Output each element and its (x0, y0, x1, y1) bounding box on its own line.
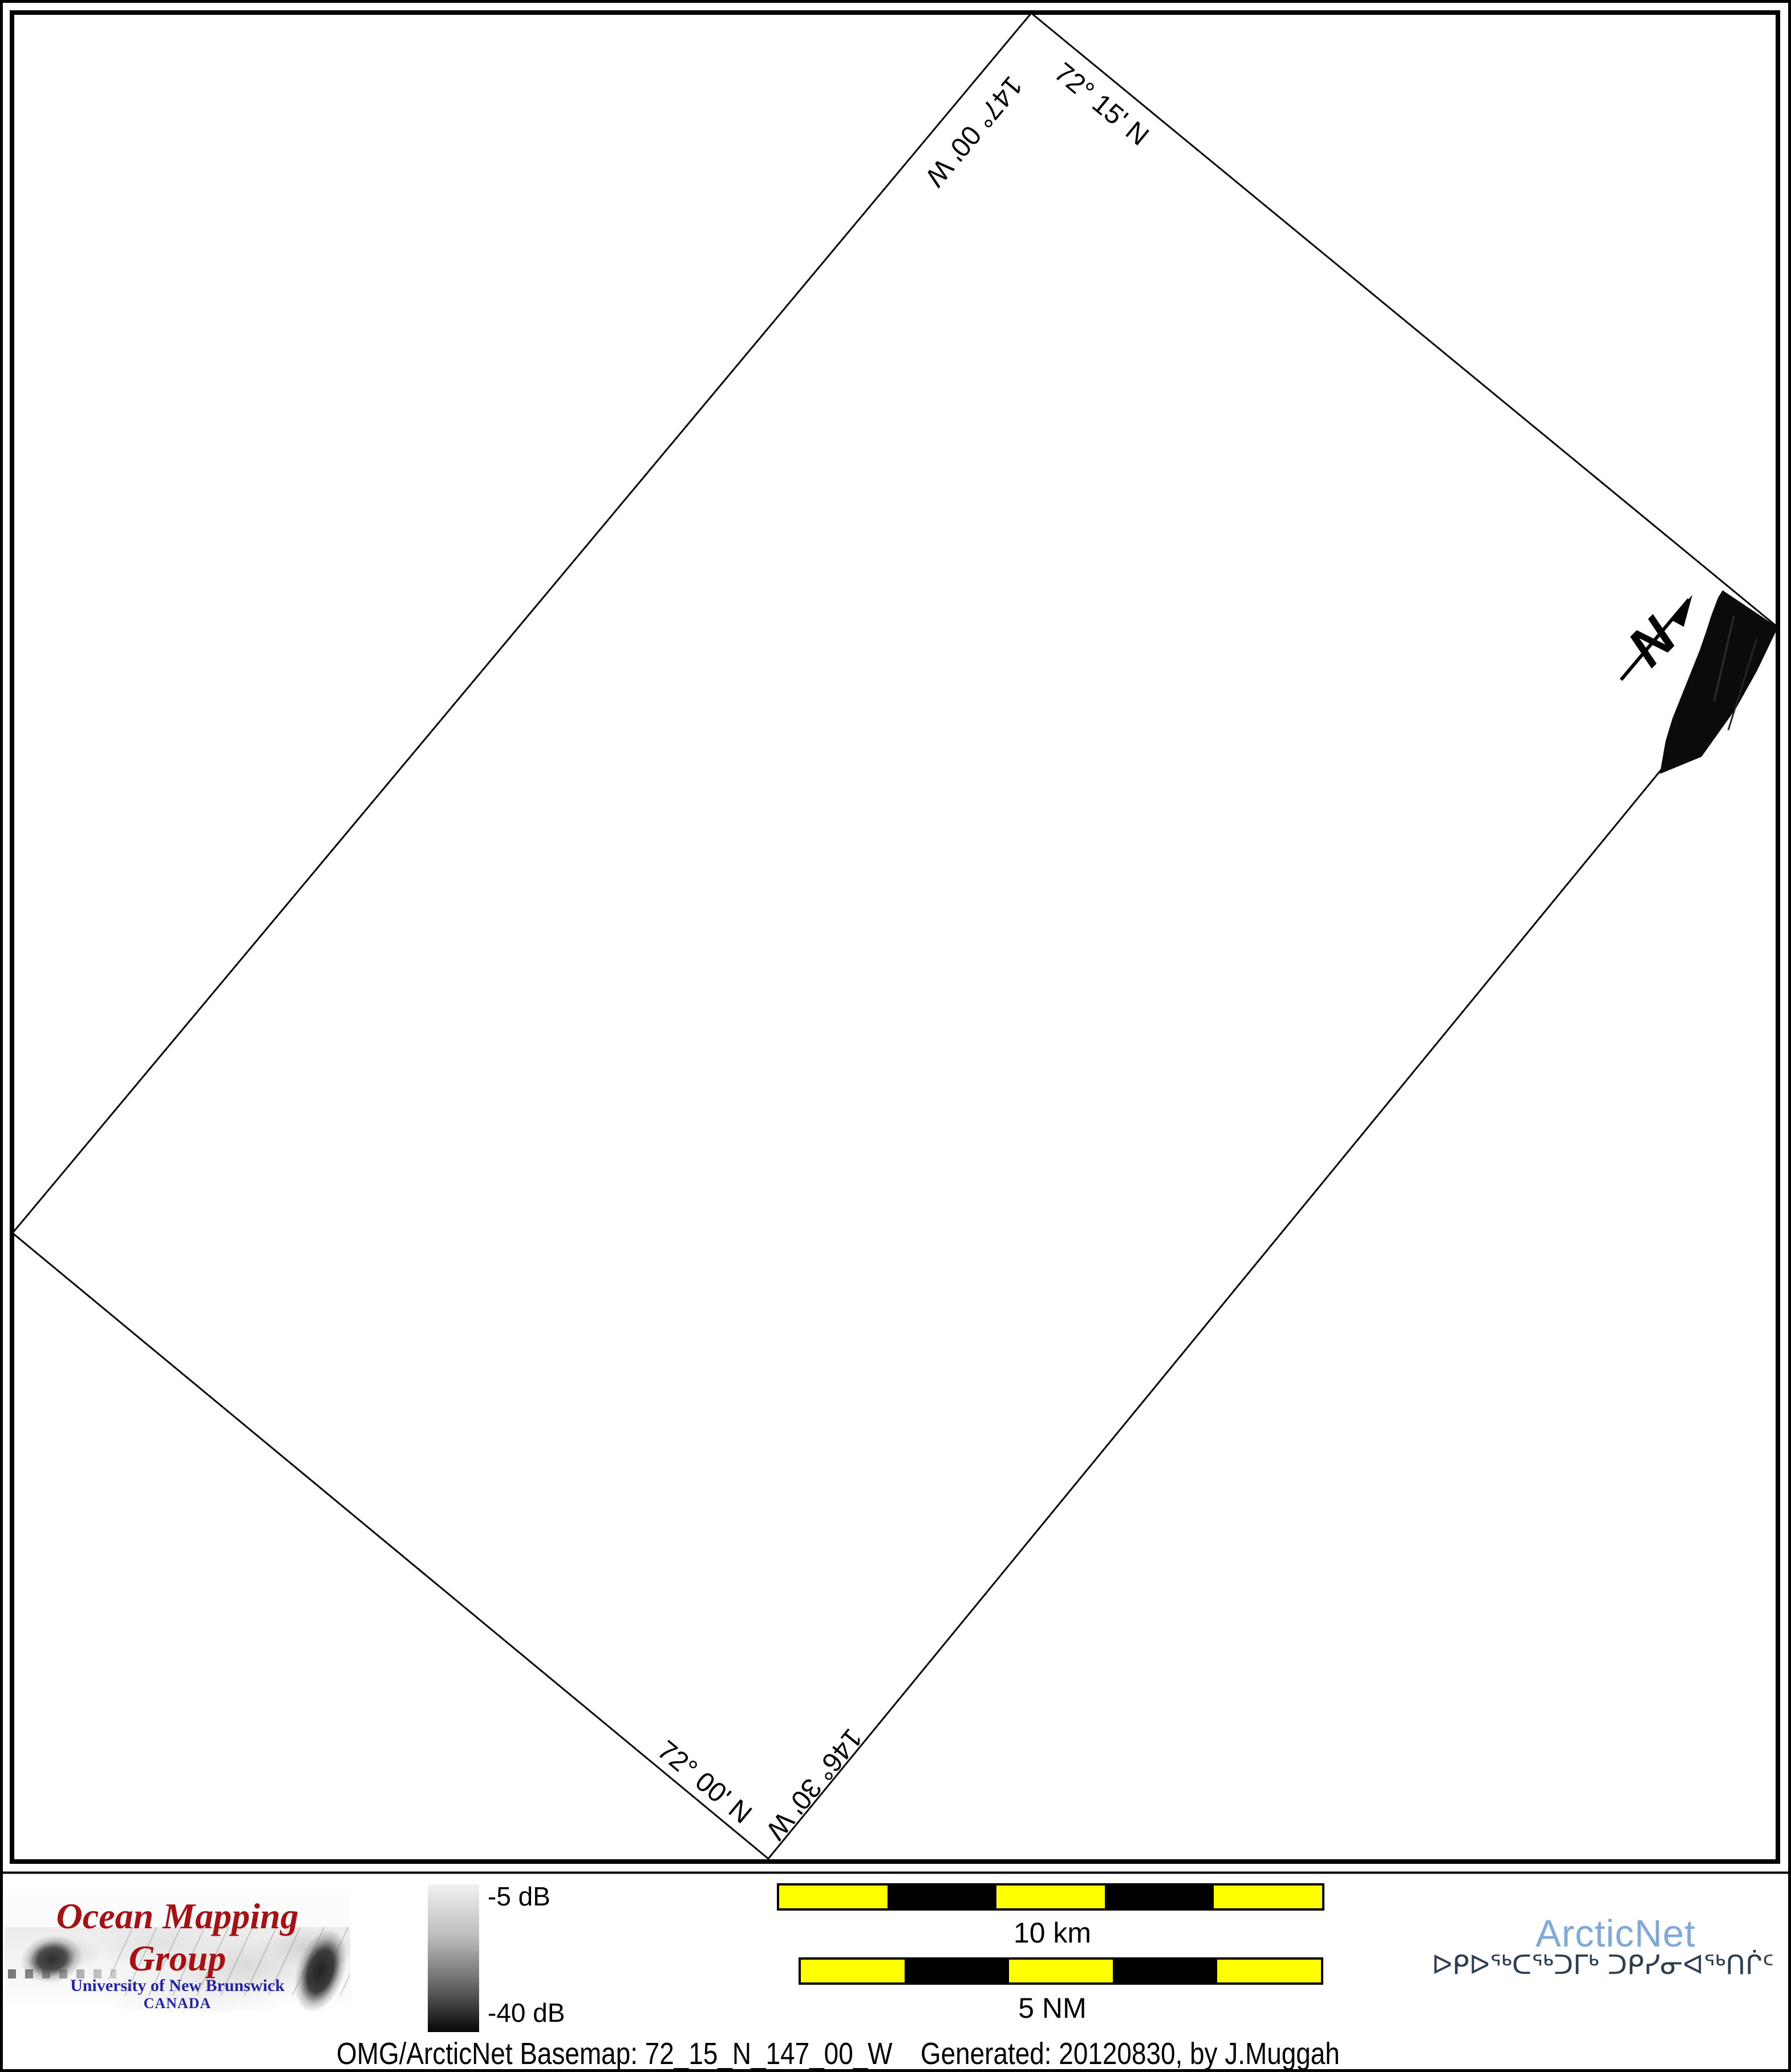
omg-logo: Ocean Mapping Group University of New Br… (5, 1894, 350, 2012)
scalebar-segment (1009, 1960, 1113, 1982)
scalebar-nm (799, 1957, 1323, 1985)
caption-generated: Generated: 20120830, by J.Muggah (921, 2037, 1340, 2071)
backscatter-colorbar (428, 1884, 479, 2032)
scalebar-segment (905, 1960, 1008, 1982)
scalebar-km-label: 10 km (967, 1916, 1138, 1949)
arcticnet-inuktitut: ᐅᑭᐅᖅᑕᖅᑐᒥᒃ ᑐᑭᓯᓂᐊᖅᑎᒌᑦ (1415, 1949, 1791, 1981)
scalebar-segment (996, 1886, 1105, 1908)
survey-boundary (13, 13, 1778, 1859)
colorbar-max-label: -5 dB (488, 1881, 550, 1912)
caption-basemap-id: OMG/ArcticNet Basemap: 72_15_N_147_00_W (337, 2037, 893, 2071)
basemap-caption: OMG/ArcticNet Basemap: 72_15_N_147_00_WG… (337, 2036, 1340, 2071)
scalebar-segment (1105, 1886, 1213, 1908)
scalebar-segment (779, 1886, 888, 1908)
omg-university: University of New Brunswick (5, 1976, 350, 1996)
scalebar-segment (1217, 1960, 1321, 1982)
scalebar-km (777, 1883, 1324, 1911)
scalebar-segment (801, 1960, 905, 1982)
scalebar-nm-label: 5 NM (967, 1992, 1138, 2025)
scalebar-segment (1113, 1960, 1217, 1982)
scalebar-segment (888, 1886, 996, 1908)
scalebar-segment (1214, 1886, 1322, 1908)
colorbar-min-label: -40 dB (488, 1997, 565, 2028)
omg-country: CANADA (5, 1995, 350, 2012)
map-plate: N 147° 00' W 72° 15' N 72° 00' N 146° 30… (0, 0, 1791, 2072)
omg-title: Ocean Mapping Group (5, 1895, 350, 1980)
